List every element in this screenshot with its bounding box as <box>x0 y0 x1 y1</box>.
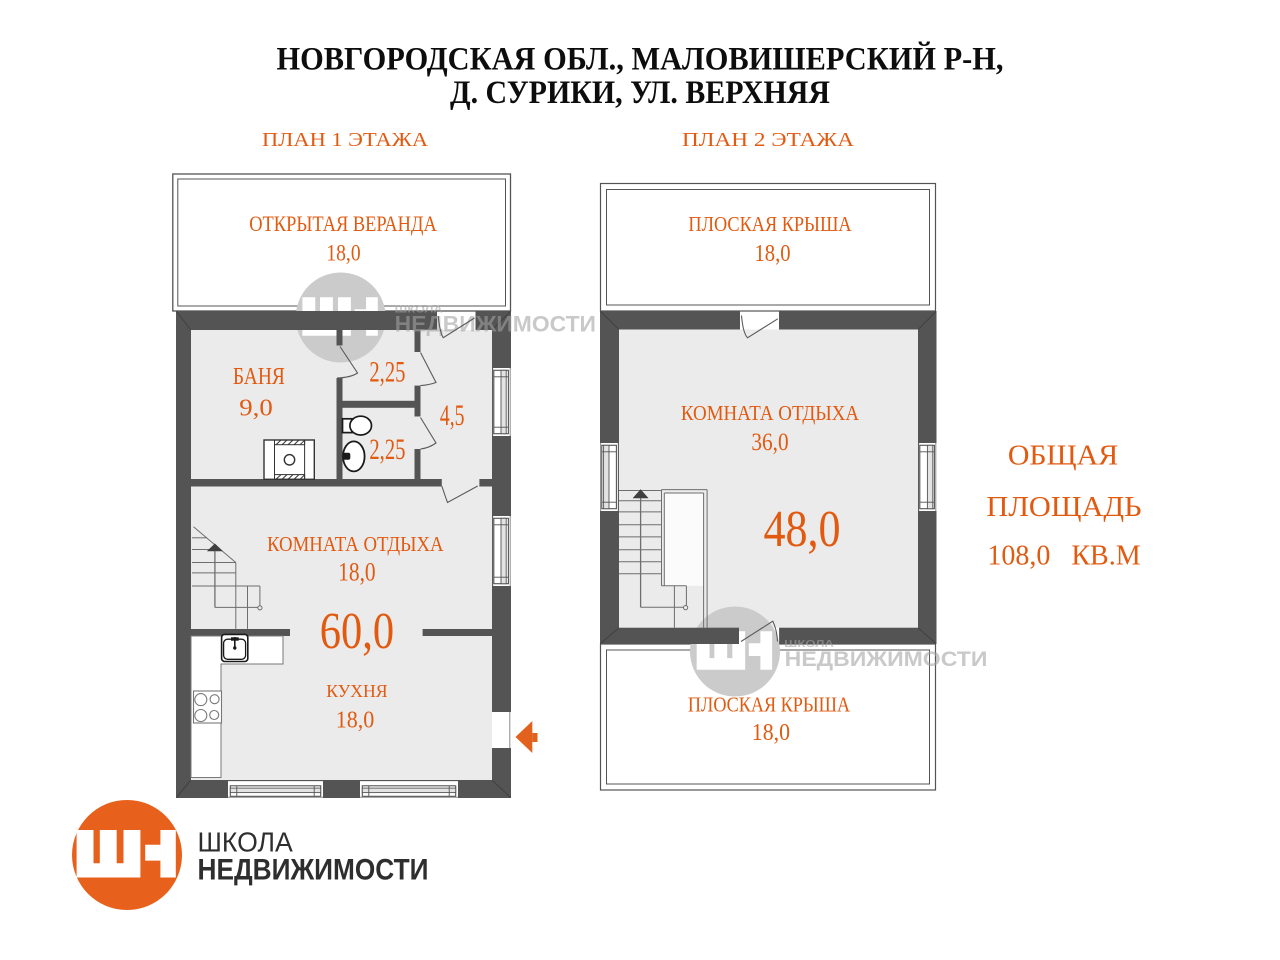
svg-text:НОВГОРОДСКАЯ ОБЛ., МАЛОВИШЕРСК: НОВГОРОДСКАЯ ОБЛ., МАЛОВИШЕРСКИЙ Р-Н, <box>277 42 1004 78</box>
svg-text:18,0: 18,0 <box>338 558 376 587</box>
svg-text:КОМНАТА ОТДЫХА: КОМНАТА ОТДЫХА <box>681 401 860 425</box>
svg-text:9,0: 9,0 <box>239 394 273 421</box>
svg-text:ПЛОСКАЯ КРЫША: ПЛОСКАЯ КРЫША <box>688 694 850 717</box>
svg-text:48,0: 48,0 <box>763 501 840 558</box>
svg-text:ПЛОСКАЯ КРЫША: ПЛОСКАЯ КРЫША <box>688 213 851 236</box>
svg-text:НЕДВИЖИМОСТИ: НЕДВИЖИМОСТИ <box>395 312 596 337</box>
svg-text:НЕДВИЖИМОСТИ: НЕДВИЖИМОСТИ <box>198 854 429 887</box>
svg-text:18,0: 18,0 <box>336 707 375 734</box>
svg-text:4,5: 4,5 <box>440 399 465 432</box>
svg-text:Д. СУРИКИ, УЛ. ВЕРХНЯЯ: Д. СУРИКИ, УЛ. ВЕРХНЯЯ <box>450 75 830 111</box>
svg-text:БАНЯ: БАНЯ <box>233 364 285 390</box>
svg-text:36,0: 36,0 <box>751 427 788 456</box>
svg-text:18,0: 18,0 <box>326 241 360 267</box>
svg-text:2,25: 2,25 <box>369 433 405 466</box>
svg-text:ПЛОЩАДЬ: ПЛОЩАДЬ <box>986 491 1141 523</box>
svg-text:108,0 КВ.М: 108,0 КВ.М <box>987 540 1140 572</box>
svg-text:ОТКРЫТАЯ ВЕРАНДА: ОТКРЫТАЯ ВЕРАНДА <box>249 211 437 236</box>
svg-text:ПЛАН 1 ЭТАЖА: ПЛАН 1 ЭТАЖА <box>262 129 428 151</box>
svg-text:КУХНЯ: КУХНЯ <box>326 681 388 701</box>
svg-text:ПЛАН 2 ЭТАЖА: ПЛАН 2 ЭТАЖА <box>682 129 854 151</box>
svg-text:КОМНАТА ОТДЫХА: КОМНАТА ОТДЫХА <box>267 532 444 556</box>
svg-text:НЕДВИЖИМОСТИ: НЕДВИЖИМОСТИ <box>785 647 988 671</box>
svg-text:18,0: 18,0 <box>752 719 790 746</box>
svg-text:ОБЩАЯ: ОБЩАЯ <box>1008 440 1118 472</box>
svg-text:60,0: 60,0 <box>320 603 394 660</box>
svg-text:2,25: 2,25 <box>369 355 405 388</box>
svg-text:18,0: 18,0 <box>754 240 790 267</box>
